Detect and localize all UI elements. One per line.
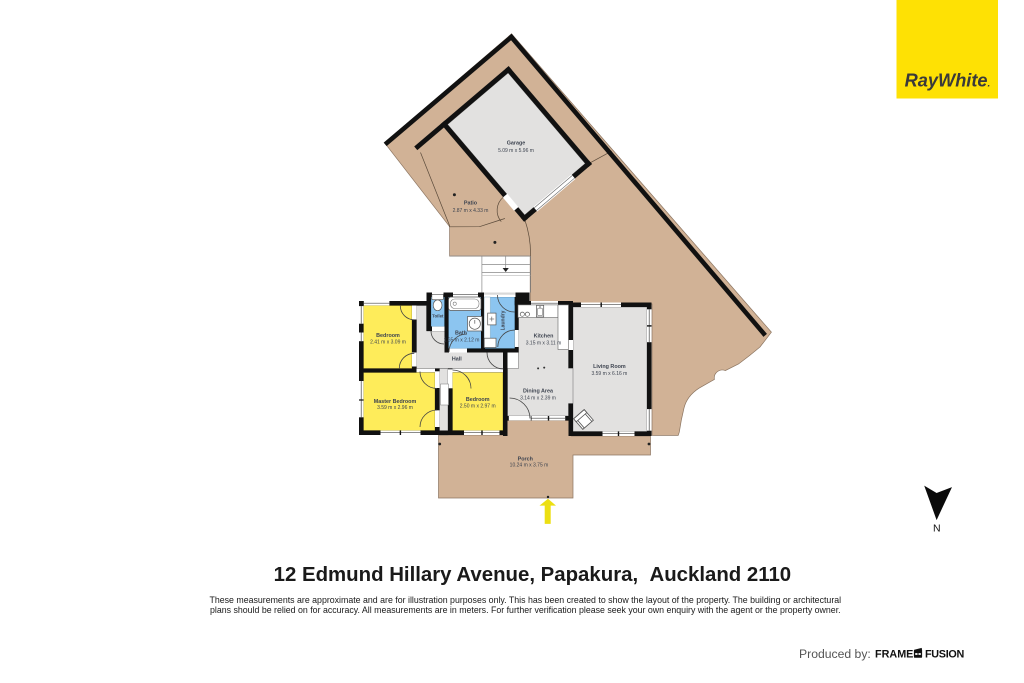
svg-text:3.14 m x 2.39 m: 3.14 m x 2.39 m bbox=[520, 396, 556, 402]
svg-text:Bedroom: Bedroom bbox=[466, 397, 490, 403]
svg-text:3.59 m x 6.16 m: 3.59 m x 6.16 m bbox=[591, 371, 627, 377]
svg-text:2.41 m x 3.09 m: 2.41 m x 3.09 m bbox=[370, 339, 406, 345]
svg-text:N: N bbox=[933, 523, 941, 535]
svg-text:10.24 m x 3.75 m: 10.24 m x 3.75 m bbox=[510, 462, 549, 468]
svg-text:2.87 m x 4.33 m: 2.87 m x 4.33 m bbox=[453, 208, 489, 214]
svg-text:FRAME: FRAME bbox=[875, 649, 913, 661]
svg-text:These measurements are approxi: These measurements are approximate and a… bbox=[209, 595, 841, 605]
svg-text:plans should be relied on for: plans should be relied on for accuracy. … bbox=[210, 605, 841, 615]
svg-text:Toilet: Toilet bbox=[432, 314, 444, 319]
svg-text:Kitchen: Kitchen bbox=[534, 334, 554, 340]
svg-text:RayWhite.: RayWhite. bbox=[905, 70, 991, 90]
svg-text:5.09 m x 5.96 m: 5.09 m x 5.96 m bbox=[498, 148, 534, 154]
svg-text:Laundry: Laundry bbox=[501, 310, 507, 330]
svg-text:Bath: Bath bbox=[455, 330, 467, 336]
svg-text:12 Edmund Hillary Avenue, Papa: 12 Edmund Hillary Avenue, Papakura, Auck… bbox=[274, 564, 792, 586]
svg-text:Produced by:: Produced by: bbox=[799, 647, 871, 661]
svg-text:Bedroom: Bedroom bbox=[376, 333, 400, 339]
svg-text:Garage: Garage bbox=[507, 141, 526, 147]
svg-text:2.50 m x 2.97 m: 2.50 m x 2.97 m bbox=[460, 403, 496, 409]
svg-text:FUSION: FUSION bbox=[925, 649, 964, 661]
svg-text:3.15 m x 3.11 m: 3.15 m x 3.11 m bbox=[526, 341, 561, 347]
svg-text:3.59 m x 2.96 m: 3.59 m x 2.96 m bbox=[377, 405, 413, 411]
svg-text:Patio: Patio bbox=[464, 201, 478, 207]
svg-text:1.65 m x 2.12 m: 1.65 m x 2.12 m bbox=[444, 337, 480, 343]
svg-text:Living Room: Living Room bbox=[593, 364, 626, 370]
svg-text:Hall: Hall bbox=[452, 356, 462, 362]
svg-text:Master Bedroom: Master Bedroom bbox=[374, 399, 417, 405]
svg-text:Dining Area: Dining Area bbox=[523, 389, 554, 395]
